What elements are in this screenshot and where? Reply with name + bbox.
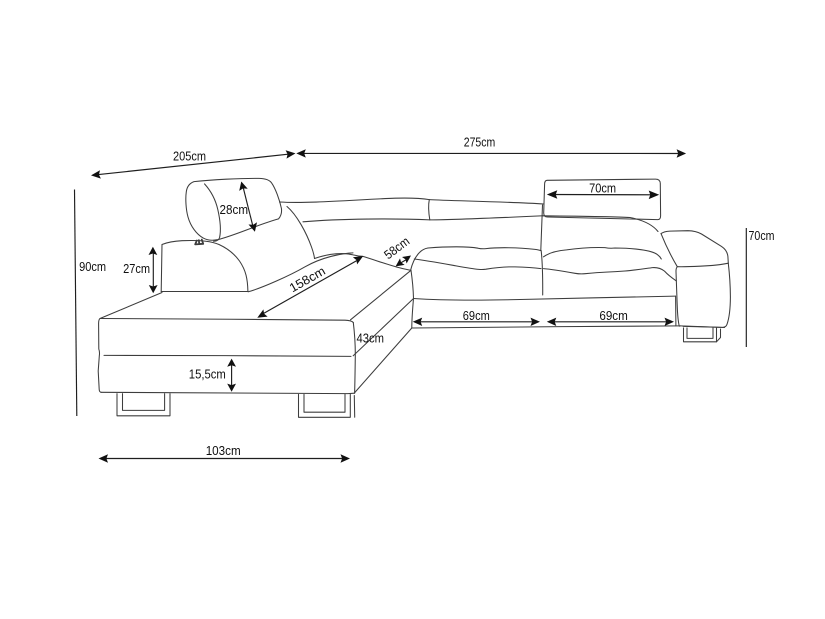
svg-text:103cm: 103cm bbox=[206, 444, 241, 458]
svg-text:275cm: 275cm bbox=[464, 136, 496, 150]
svg-text:90cm: 90cm bbox=[79, 260, 106, 274]
svg-text:28cm: 28cm bbox=[220, 203, 249, 217]
svg-text:70cm: 70cm bbox=[749, 229, 775, 243]
svg-text:70cm: 70cm bbox=[589, 181, 616, 195]
svg-text:69cm: 69cm bbox=[463, 309, 490, 323]
svg-text:43cm: 43cm bbox=[357, 331, 385, 345]
svg-text:69cm: 69cm bbox=[599, 309, 628, 323]
svg-text:205cm: 205cm bbox=[173, 149, 206, 163]
svg-text:15,5cm: 15,5cm bbox=[189, 367, 226, 381]
svg-text:27cm: 27cm bbox=[123, 262, 150, 276]
